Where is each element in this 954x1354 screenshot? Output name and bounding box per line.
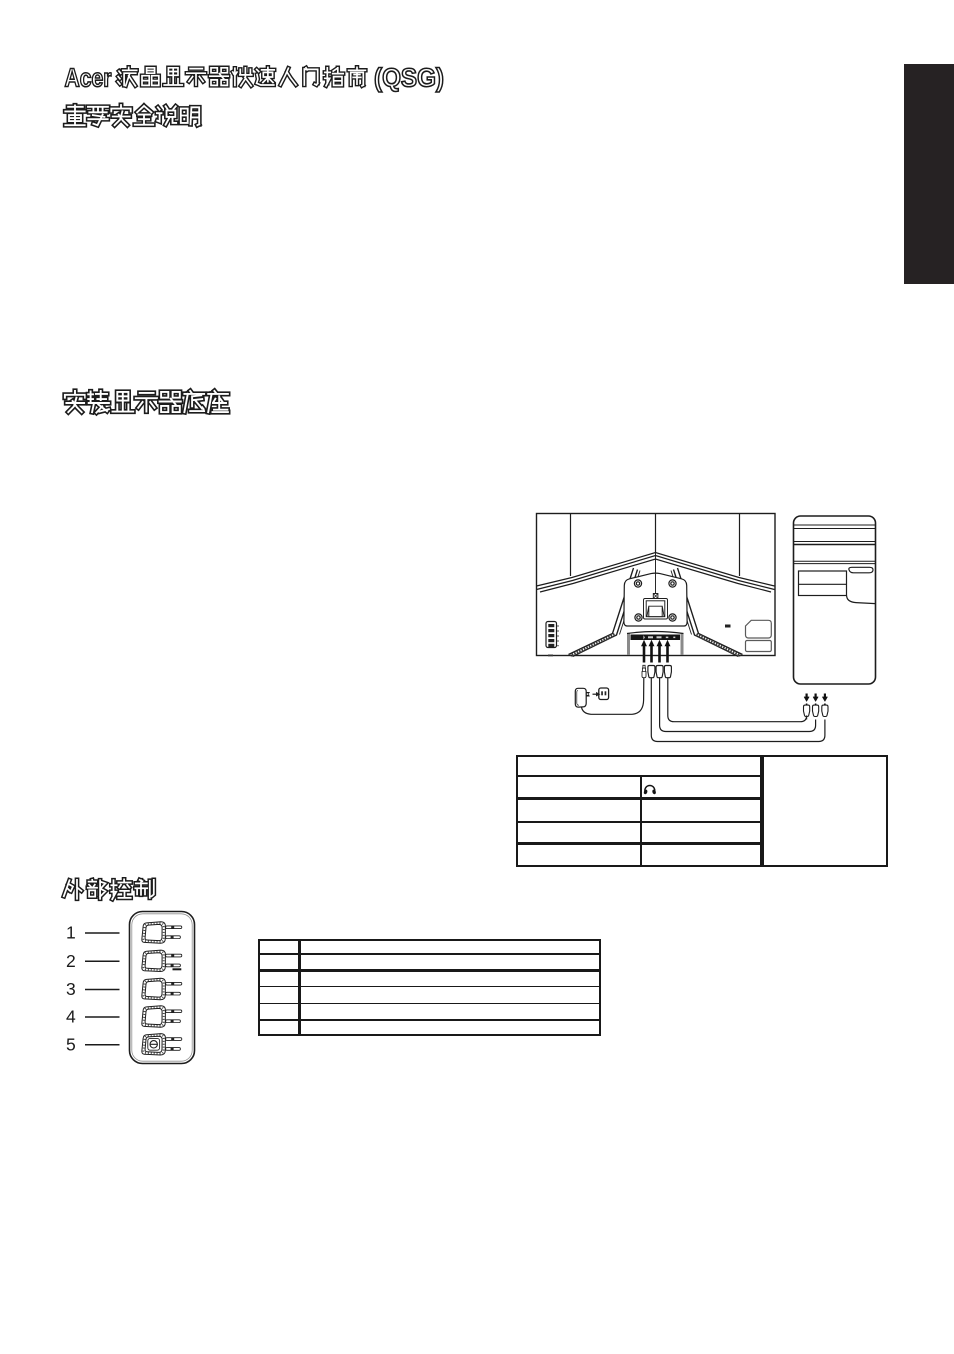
svg-text:1: 1 [66, 923, 76, 943]
svg-text:5: 5 [66, 1034, 76, 1054]
svg-text:3: 3 [66, 979, 76, 999]
svg-text:4: 4 [66, 1007, 76, 1027]
svg-text:Acer: Acer [65, 63, 112, 93]
svg-text:(QSG): (QSG) [374, 63, 444, 93]
svg-text:2: 2 [66, 951, 76, 971]
